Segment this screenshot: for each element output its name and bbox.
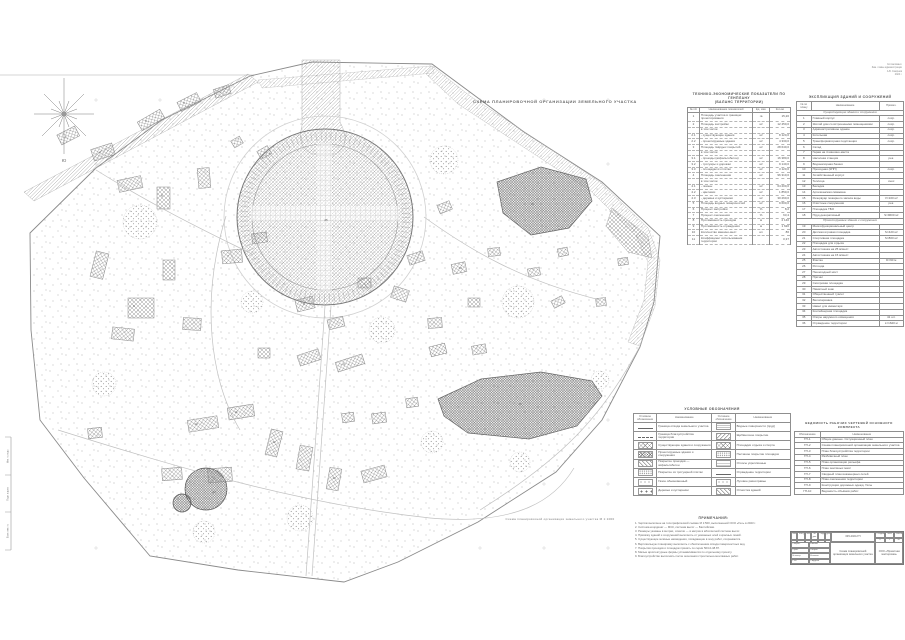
table-row: Существующие здания и сооруженияПлощадки… [634, 441, 791, 450]
table-cell: Существующие здания и сооружения [657, 441, 712, 450]
table-cell [634, 477, 657, 486]
sheets-table-body: ГП-1Общие данные. Ситуационный планГП-2С… [795, 437, 904, 494]
table-row: Покрытие проездов — асфальтобетонОткосы … [634, 459, 791, 468]
org-name: ООО «Проектная мастерская» [875, 542, 903, 564]
table-cell [712, 431, 735, 440]
tep-table-body: 1Площадь участка в границах проектирован… [688, 113, 791, 245]
table-cell: Ограждение территории [735, 468, 790, 477]
notes-body: 1. Чертёж выполнен на топографической съ… [635, 522, 792, 559]
table-row: 11Коэффициент использования территории0,… [688, 235, 791, 244]
title-block: Изм. Кол.уч. Лист № док. Подп. Дата 045-… [790, 531, 904, 565]
hatch-dense-swatch [638, 451, 653, 458]
doc-code: 045-2024-ГП [831, 532, 875, 542]
plan-caption: Схема планировочной организации земельно… [455, 517, 665, 521]
line-solid-swatch [638, 428, 653, 429]
explication-title: ЭКСПЛИКАЦИЯ ЗДАНИЙ И СООРУЖЕНИЙ [796, 95, 904, 99]
table-cell: Граница отвода земельного участка [657, 422, 712, 431]
revision-grid: Изм. Кол.уч. Лист № док. Подп. Дата [791, 532, 831, 542]
table-cell: га [753, 113, 770, 122]
wave-swatch [716, 423, 731, 430]
side-stamp-label: Подп. и дата [8, 487, 10, 501]
sheet-title: Схема планировочной организации земельно… [830, 542, 875, 564]
table-cell: Водные поверхности (пруд) [735, 422, 790, 431]
legend-block: УСЛОВНЫЕ ОБОЗНАЧЕНИЯ Условное обозначени… [633, 407, 791, 496]
explication-table: № по плану Наименование Примеч. Существу… [796, 101, 904, 327]
table-cell [712, 441, 735, 450]
table-cell: Отмостка зданий [735, 487, 790, 496]
table-cell: Площадки отдыха и спорта [735, 441, 790, 450]
table-cell [634, 487, 657, 496]
plan-title: СХЕМА ПЛАНИРОВОЧНОЙ ОРГАНИЗАЦИИ ЗЕМЕЛЬНО… [445, 99, 665, 104]
side-stamp-label: Взам. инв. № [7, 523, 10, 538]
roles-grid: Разраб. Иванов Пров. Петров Н.контр. Коз… [791, 542, 830, 564]
dots-dense-swatch [638, 469, 653, 476]
table-cell: 0,37 [769, 235, 790, 244]
table-row: Газон обыкновенныйЛуговое разнотравье [634, 477, 791, 486]
hatch-diag-swatch [638, 460, 653, 467]
table-cell [712, 477, 735, 486]
hatch-cross-swatch [638, 442, 653, 449]
explication-table-body: Существующие здания и сооружения1Главный… [797, 110, 904, 326]
table-cell: Ограждение территории [811, 321, 879, 327]
column-header: № по плану [797, 102, 812, 111]
column-header: Условное обозначение [712, 414, 735, 423]
table-cell: Луговое разнотравье [735, 477, 790, 486]
table-row: 36Ограждение территорииL=1620 м [797, 321, 904, 327]
table-cell: 36 [797, 321, 812, 327]
corner-note-line: 2024 г. [838, 73, 902, 76]
table-row: Граница благоустройства территорииЩебёно… [634, 431, 791, 440]
table-cell [634, 468, 657, 477]
notes-title: ПРИМЕЧАНИЯ: [635, 516, 792, 520]
hatch-diag2-swatch [716, 433, 731, 440]
table-cell: Покрытие проездов — асфальтобетон [657, 459, 712, 468]
table-cell [634, 450, 657, 459]
dots-dense-swatch [716, 451, 731, 458]
side-stamp-label: Инв. № подл. [7, 448, 10, 463]
sheets-title: ВЕДОМОСТЬ РАБОЧИХ ЧЕРТЕЖЕЙ ОСНОВНОГО КОМ… [794, 421, 904, 429]
column-header: Условное обозначение [634, 414, 657, 423]
table-cell [634, 459, 657, 468]
table-cell: Площадь участка в границах проектировани… [699, 113, 752, 122]
tree-swatch [638, 488, 653, 495]
column-header: Наименование [735, 414, 790, 423]
site-plan-drawing: Ю Инв. № подл. Подп. и дата Взам. инв. № [0, 0, 690, 640]
drawing-sheet: Ю Инв. № подл. Подп. и дата Взам. инв. №… [0, 0, 905, 640]
note-line: 9. Благоустройство выполнять после оконч… [635, 555, 792, 559]
table-cell: 11 [688, 235, 700, 244]
explication-block: ЭКСПЛИКАЦИЯ ЗДАНИЙ И СООРУЖЕНИЙ № по пла… [796, 95, 904, 327]
table-cell: Щебёночное покрытие [735, 431, 790, 440]
legend-title: УСЛОВНЫЕ ОБОЗНАЧЕНИЯ [633, 407, 791, 411]
table-cell: ГП-10 [795, 488, 821, 494]
column-header: Наименование [811, 102, 879, 111]
table-cell: Коэффициент использования территории [699, 235, 752, 244]
dots-sparse-swatch [716, 479, 731, 486]
side-stamp: Инв. № подл. Подп. и дата Взам. инв. № [5, 437, 11, 550]
table-cell [753, 235, 770, 244]
table-cell [712, 450, 735, 459]
table-cell [712, 487, 735, 496]
table-cell [634, 441, 657, 450]
sheets-block: ВЕДОМОСТЬ РАБОЧИХ ЧЕРТЕЖЕЙ ОСНОВНОГО КОМ… [794, 421, 904, 495]
stage-grid: Стадия Лист Листов П 2 10 [875, 532, 903, 542]
table-cell: Песчаное покрытие площадок [735, 450, 790, 459]
column-header: Примеч. [879, 102, 904, 111]
tep-table-block: ТЕХНИКО-ЭКОНОМИЧЕСКИЕ ПОКАЗАТЕЛИ ПО ГЕНП… [687, 92, 791, 245]
hatch-diag-swatch [716, 488, 731, 495]
table-cell: 15,20 [769, 113, 790, 122]
table-row: Покрытие из тротуарной плиткиОграждение … [634, 468, 791, 477]
table-cell: Ведомость объёмов работ [820, 488, 903, 494]
corner-note: Согласовано: Зам. главы администрации А.… [838, 63, 902, 77]
dots-sparse-swatch [638, 479, 653, 486]
table-cell: 1 [688, 113, 700, 122]
table-cell [712, 459, 735, 468]
notes-block: ПРИМЕЧАНИЯ: 1. Чертёж выполнен на топогр… [635, 516, 792, 559]
table-cell [712, 468, 735, 477]
line-dashdot-swatch [638, 437, 653, 438]
tep-table-title: ТЕХНИКО-ЭКОНОМИЧЕСКИЕ ПОКАЗАТЕЛИ ПО ГЕНП… [687, 92, 791, 105]
tep-table: № п/п Наименование показателей Ед. изм. … [687, 107, 791, 246]
column-header: Наименование [657, 414, 712, 423]
table-cell [712, 422, 735, 431]
table-cell [634, 431, 657, 440]
table-cell: Проектируемые здания и сооружения [657, 450, 712, 459]
table-row: Граница отвода земельного участкаВодные … [634, 422, 791, 431]
hatch-cross-swatch [716, 442, 731, 449]
sheets-table: Обозначение Наименование ГП-1Общие данны… [794, 431, 904, 494]
table-cell: Откосы укреплённые [735, 459, 790, 468]
table-cell: Деревья и кустарники [657, 487, 712, 496]
wind-rose-icon [34, 78, 94, 154]
line-fence-swatch [716, 474, 731, 475]
table-row: ГП-10Ведомость объёмов работ [795, 488, 904, 494]
table-cell: L=1620 м [879, 321, 904, 327]
legend-table: Условное обозначение Наименование Условн… [633, 413, 791, 496]
hlines-swatch [716, 460, 731, 467]
table-cell [634, 422, 657, 431]
table-row: Деревья и кустарникиОтмостка зданий [634, 487, 791, 496]
compass-south-label: Ю [62, 158, 67, 163]
table-row: 1Площадь участка в границах проектирован… [688, 113, 791, 122]
table-cell: Газон обыкновенный [657, 477, 712, 486]
table-cell: Граница благоустройства территории [657, 431, 712, 440]
table-row: Проектируемые здания и сооруженияПесчано… [634, 450, 791, 459]
table-cell: Покрытие из тротуарной плитки [657, 468, 712, 477]
legend-table-body: Граница отвода земельного участкаВодные … [634, 422, 791, 496]
